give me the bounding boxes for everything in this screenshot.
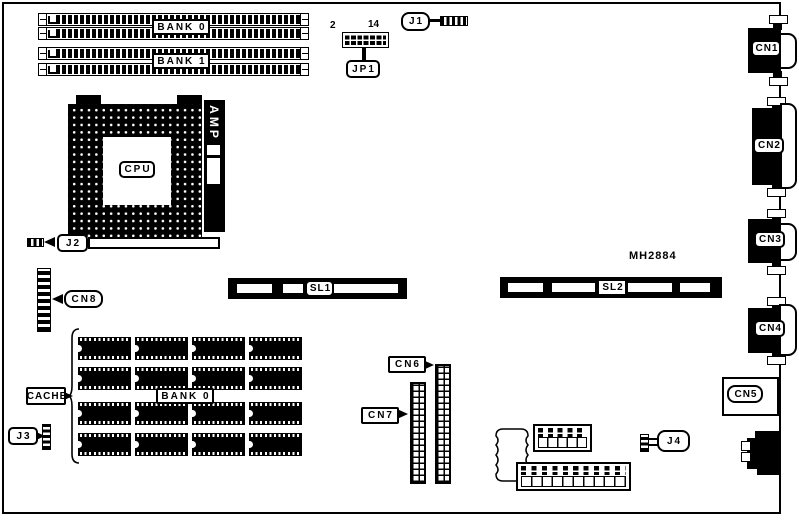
cache-chip bbox=[78, 433, 131, 456]
terminal-cells bbox=[538, 437, 587, 448]
cpu-label: CPU bbox=[119, 161, 155, 178]
cn4-mount-tab bbox=[767, 356, 786, 365]
cache-chip bbox=[135, 433, 188, 456]
amp-slot-window bbox=[207, 145, 220, 155]
chip-notch-icon bbox=[135, 375, 139, 382]
cache-label: CACHE bbox=[26, 387, 66, 405]
cn6-pin-header bbox=[435, 364, 451, 484]
sl2-slot-segment bbox=[628, 283, 672, 292]
port-pin bbox=[741, 441, 751, 451]
bank1-memory-label: BANK 1 bbox=[152, 53, 210, 69]
cn7-label: CN7 bbox=[361, 407, 399, 424]
cpu-retention-bar bbox=[88, 237, 220, 249]
cn2-label: CN2 bbox=[753, 137, 784, 154]
cache-chip bbox=[135, 402, 188, 425]
part-number: MH2884 bbox=[629, 250, 677, 262]
cache-chip bbox=[249, 433, 302, 456]
cache-chip-row bbox=[78, 433, 302, 456]
simm-clip-left bbox=[39, 14, 47, 25]
cn2-mount-tab bbox=[767, 188, 786, 197]
simm-clip-right bbox=[300, 64, 308, 75]
cache-chip bbox=[78, 402, 131, 425]
cn8-leader-arrow bbox=[52, 294, 63, 304]
chip-notch-icon bbox=[249, 375, 253, 382]
cpu-socket-tab bbox=[177, 95, 202, 104]
terminal-block-11pin bbox=[516, 462, 631, 491]
cache-chip bbox=[135, 337, 188, 360]
j1-label: J1 bbox=[401, 12, 430, 31]
cache-chip bbox=[135, 367, 188, 390]
cache-chip bbox=[249, 337, 302, 360]
cn3-mount-tab bbox=[767, 266, 786, 275]
cache-chip bbox=[192, 367, 245, 390]
port-pin bbox=[741, 452, 751, 462]
jp1-pin-header bbox=[342, 32, 389, 48]
simm-latch-icon bbox=[47, 64, 56, 75]
sl1-slot-segment bbox=[334, 284, 398, 293]
cn1-mount-tab bbox=[769, 77, 788, 86]
cache-chip bbox=[78, 337, 131, 360]
simm-clip-left bbox=[39, 48, 47, 59]
sl2-slot-segment bbox=[680, 283, 710, 292]
sl1-slot-segment bbox=[283, 284, 303, 293]
jp1-pin2-number: 2 bbox=[330, 20, 336, 31]
cn5-label: CN5 bbox=[727, 385, 763, 403]
chip-notch-icon bbox=[135, 441, 139, 448]
cn8-label: CN8 bbox=[64, 290, 103, 308]
keyboard-port bbox=[747, 438, 780, 469]
cn7-pin-header bbox=[410, 382, 426, 484]
j2-label: J2 bbox=[57, 234, 88, 252]
bank0-memory-label: BANK 0 bbox=[152, 19, 210, 35]
chip-notch-icon bbox=[249, 410, 253, 417]
simm-clip-left bbox=[39, 64, 47, 75]
cache-chip bbox=[249, 367, 302, 390]
cpu-socket-tab bbox=[76, 95, 101, 104]
cn2-stub bbox=[772, 182, 781, 188]
simm-clip-right bbox=[300, 14, 308, 25]
motherboard-diagram: BANK 0 BANK 1 2 14 JP1 J1 CPU AMP J2 CN8… bbox=[0, 0, 799, 520]
chip-notch-icon bbox=[192, 410, 196, 417]
simm-clip-left bbox=[39, 28, 47, 39]
terminal-cells bbox=[521, 476, 626, 487]
j2-connector bbox=[27, 238, 44, 247]
chip-notch-icon bbox=[192, 375, 196, 382]
sl2-label: SL2 bbox=[597, 279, 627, 296]
simm-latch-icon bbox=[47, 48, 56, 59]
cache-chip bbox=[192, 337, 245, 360]
cn4-label: CN4 bbox=[754, 320, 785, 337]
terminal-pins bbox=[521, 466, 626, 475]
amp-slot-window bbox=[207, 158, 220, 184]
cn1-stub bbox=[773, 71, 782, 78]
j1-leader-line bbox=[429, 19, 441, 22]
simm-clip-right bbox=[300, 28, 308, 39]
sl1-slot-segment bbox=[237, 284, 272, 293]
cache-bank0-label: BANK 0 bbox=[156, 388, 214, 404]
terminal-pins bbox=[538, 428, 587, 437]
chip-notch-icon bbox=[135, 410, 139, 417]
cn1-dsub-shell bbox=[779, 33, 797, 69]
j1-connector bbox=[440, 16, 468, 26]
cache-chip-row bbox=[78, 402, 302, 425]
jp1-leader-line bbox=[362, 47, 366, 61]
jp1-label: JP1 bbox=[346, 60, 380, 78]
j2-leader-arrow bbox=[44, 237, 55, 247]
amp-label: AMP bbox=[207, 103, 221, 143]
cache-chip bbox=[249, 402, 302, 425]
chip-notch-icon bbox=[192, 441, 196, 448]
cn4-stub bbox=[772, 351, 781, 356]
cn6-label: CN6 bbox=[388, 356, 426, 373]
j3-label: J3 bbox=[8, 427, 38, 445]
cn8-connector bbox=[37, 268, 51, 332]
cache-chip bbox=[78, 367, 131, 390]
jp1-pin14-number: 14 bbox=[368, 19, 379, 30]
cache-chip bbox=[192, 402, 245, 425]
chip-notch-icon bbox=[135, 345, 139, 352]
chip-notch-icon bbox=[192, 345, 196, 352]
sl2-slot-segment bbox=[552, 283, 595, 292]
j4-connector bbox=[640, 434, 649, 452]
chip-notch-icon bbox=[249, 345, 253, 352]
sl2-slot-segment bbox=[508, 283, 543, 292]
cn1-label: CN1 bbox=[751, 40, 781, 57]
cn3-label: CN3 bbox=[754, 231, 785, 248]
simm-clip-right bbox=[300, 48, 308, 59]
cache-chip bbox=[192, 433, 245, 456]
j4-label: J4 bbox=[657, 430, 690, 452]
terminal-block-6pin bbox=[533, 424, 592, 452]
simm-latch-icon bbox=[47, 28, 56, 39]
cn3-stub bbox=[772, 261, 781, 266]
sl1-label: SL1 bbox=[305, 280, 334, 297]
cache-chip-row bbox=[78, 367, 302, 390]
keyboard-port bbox=[757, 468, 780, 475]
chip-notch-icon bbox=[249, 441, 253, 448]
cache-chip-row bbox=[78, 337, 302, 360]
simm-latch-icon bbox=[47, 14, 56, 25]
